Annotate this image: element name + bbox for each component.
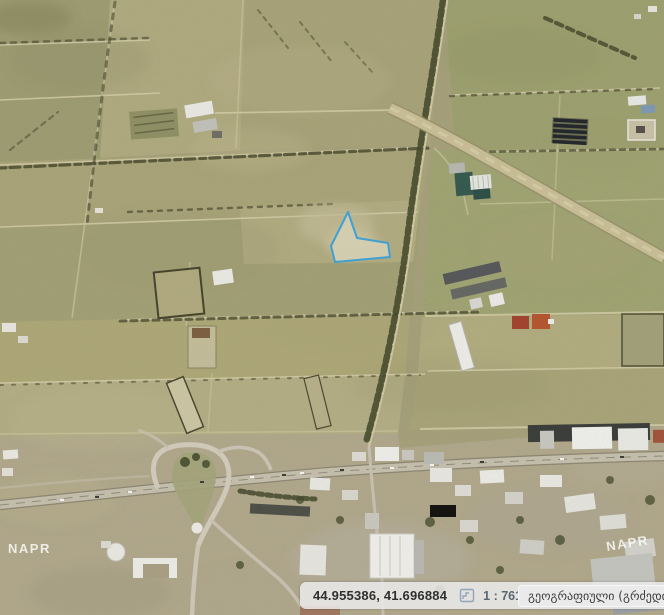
napr-watermark-left: NAPR [8,541,51,556]
cursor-coordinates: 44.955386, 41.696884 [313,588,447,603]
map-viewer-window: NAPR NAPR 44.955386, 41.696884 1 : 7611 … [0,0,664,615]
image-grain [0,0,664,615]
map-scale-icon [459,588,475,603]
satellite-map-canvas[interactable]: NAPR NAPR [0,0,664,615]
crs-selector[interactable]: გეოგრაფიული (გრძედი,განედი) [518,585,664,607]
status-bar: 44.955386, 41.696884 1 : 7611 გეოგრაფიულ… [300,582,664,609]
crs-label: გეოგრაფიული (გრძედი,განედი) [528,589,664,603]
